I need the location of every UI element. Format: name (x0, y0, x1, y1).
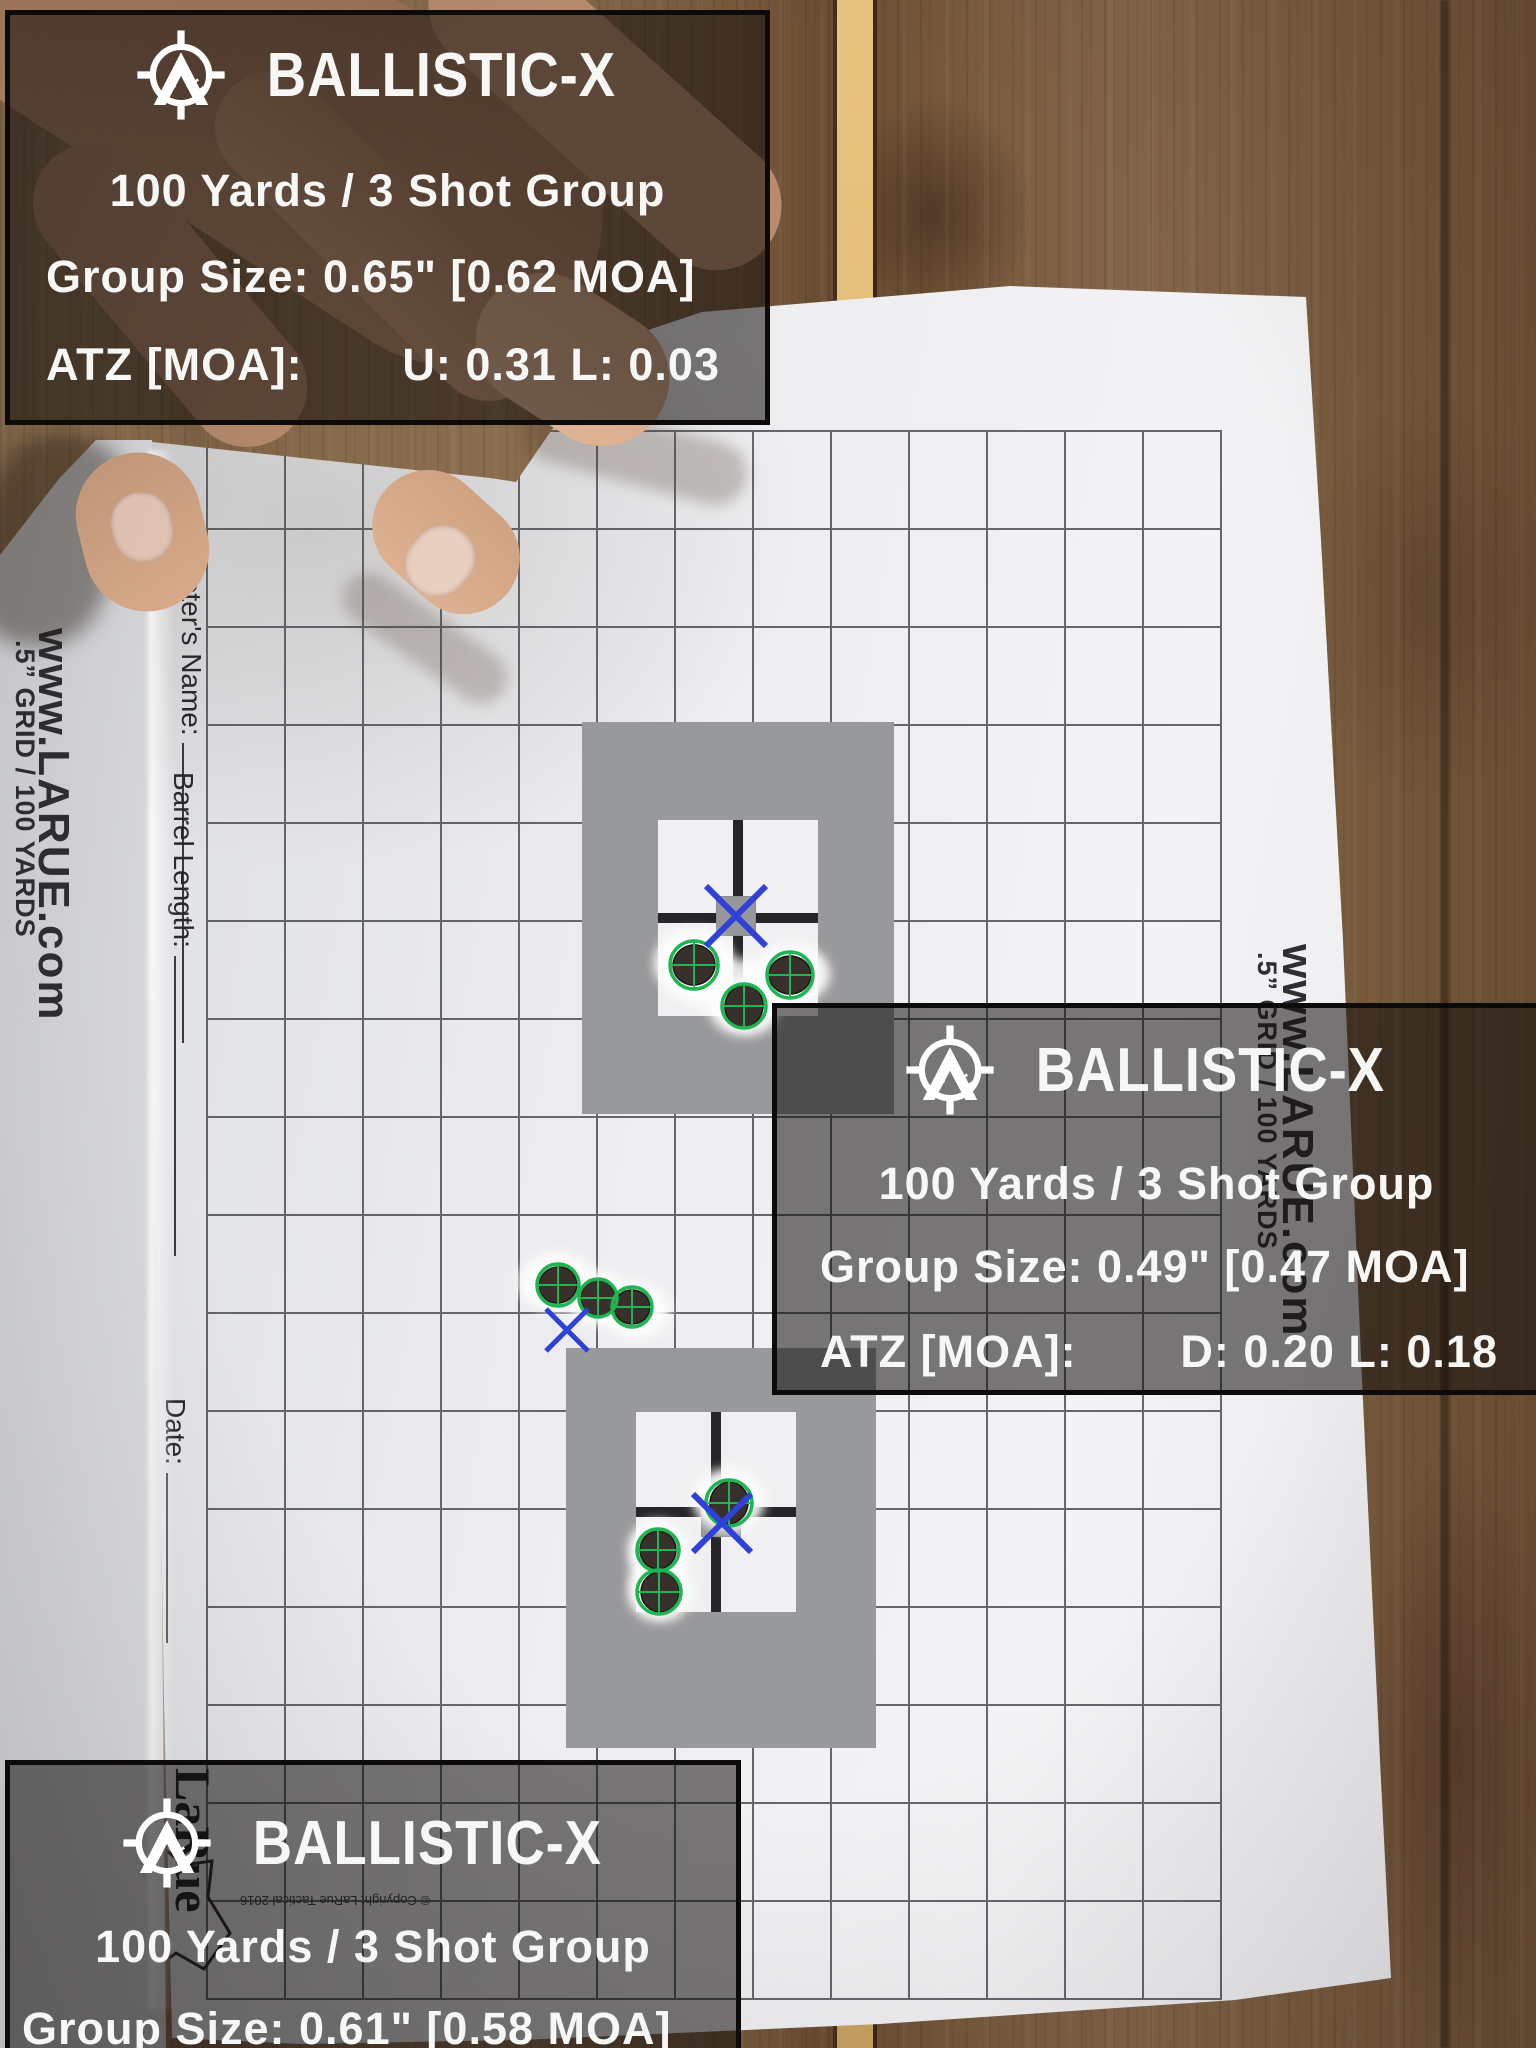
ballistic-x-share-photo: www.LARUE.com .5” GRID / 100 YARDS Amm S… (0, 0, 1536, 2048)
group-summary-panel-2: BALLISTIC-X 100 Yards / 3 Shot Group Gro… (772, 1003, 1536, 1395)
barrel-length-line (174, 956, 204, 1256)
aim-square-lower (701, 1497, 741, 1537)
group-header: 100 Yards / 3 Shot Group (777, 1158, 1536, 1210)
group-size-text: Group Size: 0.65" [0.62 MOA] (46, 251, 695, 303)
group-header: 100 Yards / 3 Shot Group (10, 165, 765, 217)
aim-square-upper (716, 896, 756, 936)
brand-wordmark: BALLISTIC-X (252, 1808, 601, 1879)
atz-label: ATZ [MOA]: (820, 1326, 1077, 1378)
ballistic-x-logo: BALLISTIC-X (10, 1793, 736, 1893)
brand-wordmark: BALLISTIC-X (1036, 1035, 1385, 1106)
ballistic-x-logo: BALLISTIC-X (10, 25, 765, 125)
left-margin-grid-label: .5” GRID / 100 YARDS (9, 640, 40, 938)
reticle-ruler-icon (904, 1020, 996, 1120)
group-summary-panel-1: BALLISTIC-X 100 Yards / 3 Shot Group Gro… (5, 10, 770, 425)
group-header: 100 Yards / 3 Shot Group (10, 1921, 736, 1973)
ballistic-x-logo: BALLISTIC-X (777, 1020, 1536, 1120)
group-size-text: Group Size: 0.49" [0.47 MOA] (820, 1241, 1469, 1293)
group-size-text: Group Size: 0.61" [0.58 MOA] (22, 2003, 671, 2048)
atz-row: ATZ [MOA]: D: 0.20 L: 0.18 (820, 1326, 1498, 1378)
reticle-ruler-icon (121, 1793, 213, 1893)
group-summary-panel-3: BALLISTIC-X 100 Yards / 3 Shot Group Gro… (5, 1760, 741, 2048)
atz-row: ATZ [MOA]: U: 0.31 L: 0.03 (46, 339, 720, 391)
reticle-ruler-icon (135, 25, 227, 125)
label-shooters-name-text: Shooter's Name: (176, 528, 207, 736)
atz-values: U: 0.31 L: 0.03 (402, 339, 720, 391)
brand-wordmark: BALLISTIC-X (267, 40, 616, 111)
atz-values: D: 0.20 L: 0.18 (1180, 1326, 1498, 1378)
atz-label: ATZ [MOA]: (46, 339, 303, 391)
